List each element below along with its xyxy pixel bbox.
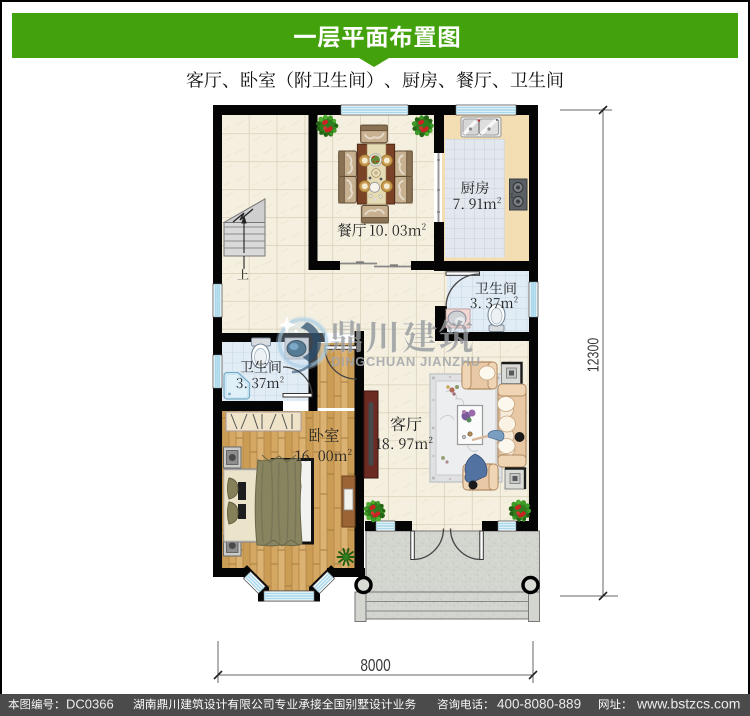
svg-text:DINGCHUAN JIANZHU: DINGCHUAN JIANZHU	[331, 354, 481, 369]
svg-text:400-8080-889: 400-8080-889	[497, 697, 581, 712]
svg-text:8000: 8000	[360, 657, 391, 676]
svg-text:www.bstzcs.com: www.bstzcs.com	[636, 696, 740, 712]
svg-text:DC0366: DC0366	[66, 697, 114, 712]
svg-text:12300: 12300	[584, 338, 602, 373]
